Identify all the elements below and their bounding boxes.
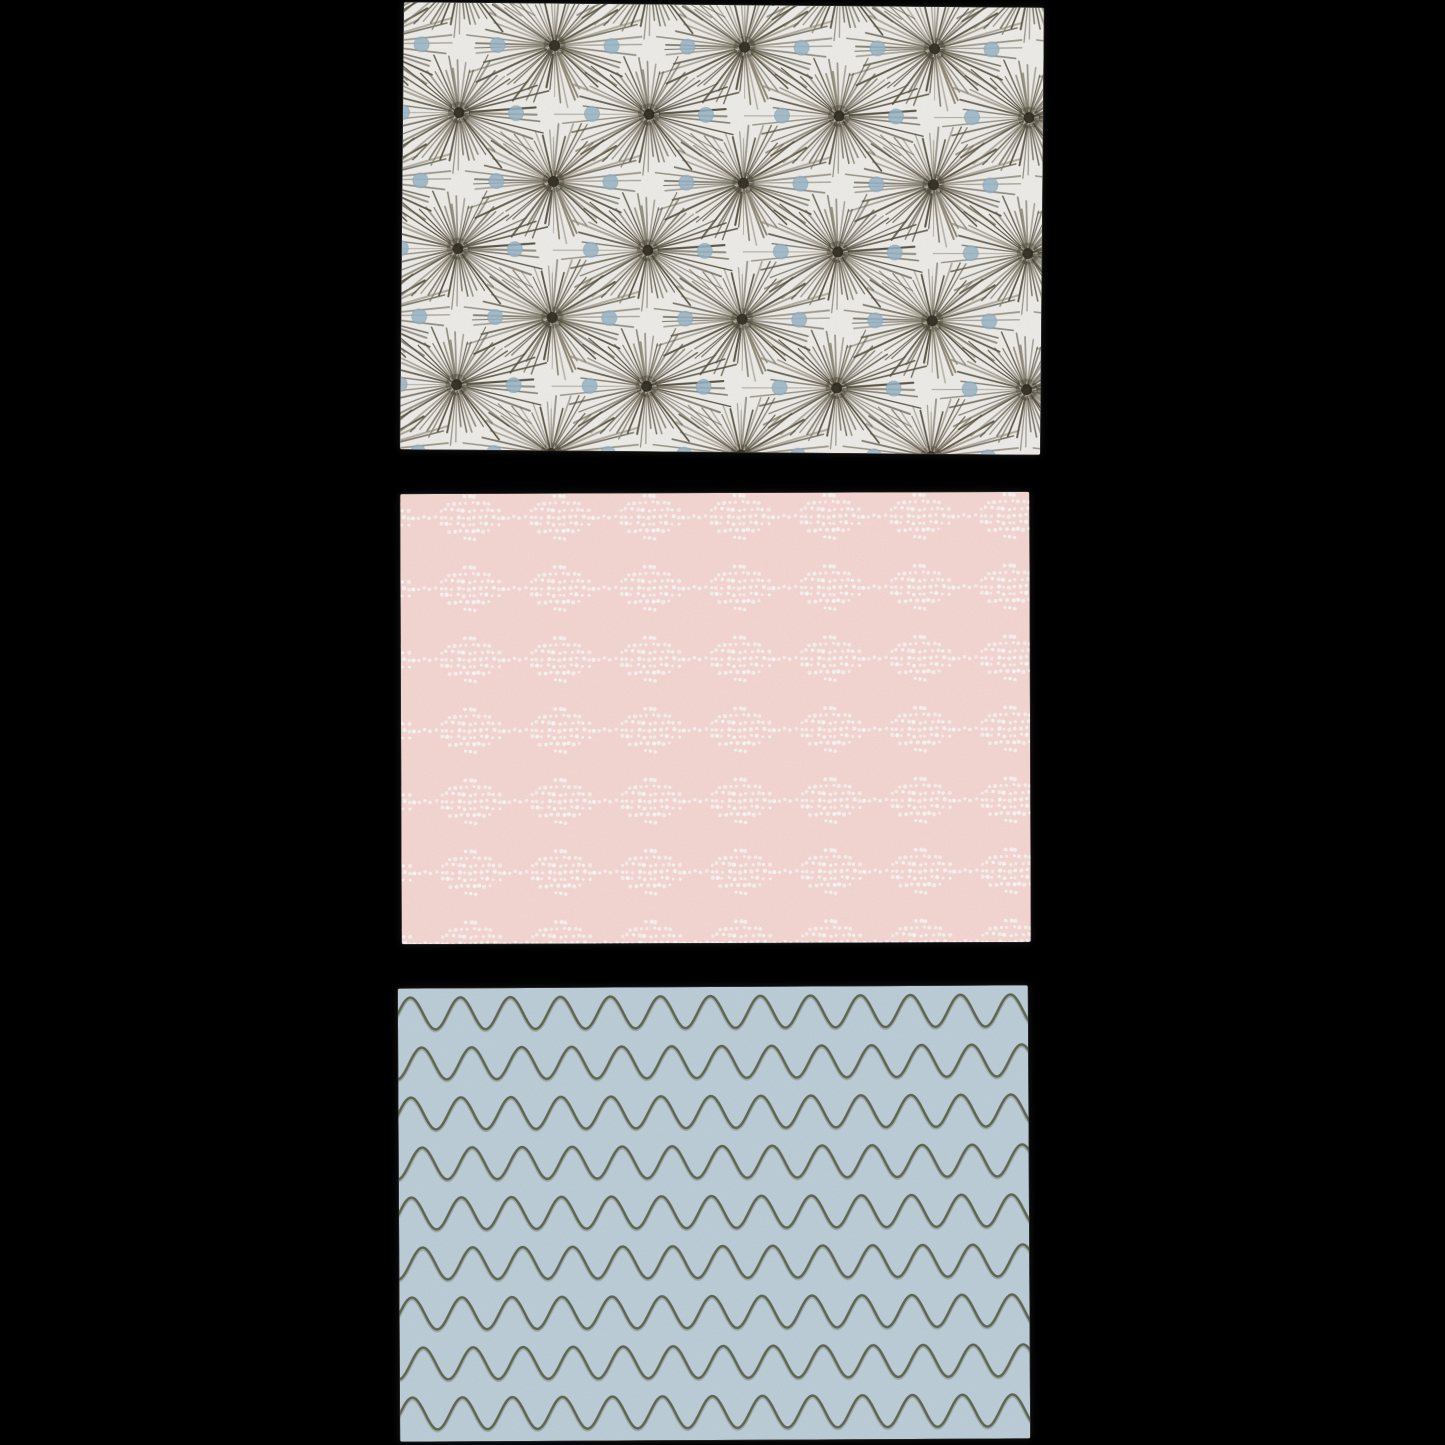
- card-waves: [398, 985, 1030, 1441]
- card-dotted-diamonds: [400, 492, 1031, 944]
- card-starburst: [400, 2, 1044, 455]
- starburst-pattern-image: [400, 2, 1044, 455]
- dotted-diamonds-pattern-image: [400, 492, 1031, 944]
- waves-pattern-image: [398, 985, 1030, 1441]
- scene: [0, 0, 1445, 1445]
